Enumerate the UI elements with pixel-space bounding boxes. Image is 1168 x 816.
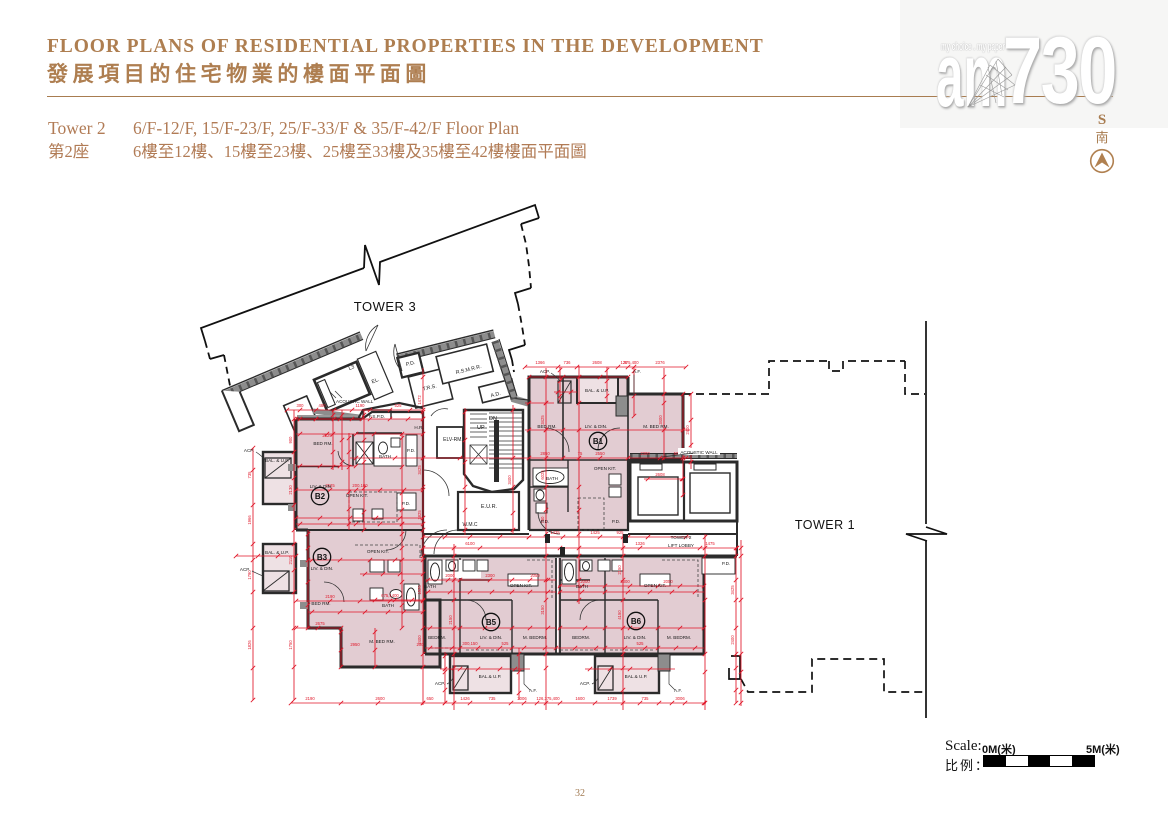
svg-text:TOWER 1: TOWER 1 xyxy=(795,518,855,532)
svg-text:1750: 1750 xyxy=(288,640,293,650)
svg-text:1739: 1739 xyxy=(607,696,617,701)
svg-text:1472: 1472 xyxy=(417,395,422,405)
svg-text:BATH: BATH xyxy=(576,584,588,589)
svg-text:BEDRM.: BEDRM. xyxy=(428,635,446,640)
svg-text:2000: 2000 xyxy=(445,573,455,578)
svg-text:650: 650 xyxy=(427,696,435,701)
svg-text:2110: 2110 xyxy=(288,555,293,565)
svg-text:A.F.: A.F. xyxy=(633,369,641,374)
svg-text:BATH: BATH xyxy=(379,454,391,459)
svg-text:1425: 1425 xyxy=(590,530,600,535)
svg-text:BAL. & U.P.: BAL. & U.P. xyxy=(265,458,289,463)
svg-text:BEDRM.: BEDRM. xyxy=(572,635,590,640)
svg-text:675,1400: 675,1400 xyxy=(381,593,399,598)
svg-text:1600: 1600 xyxy=(575,696,585,701)
svg-text:3006: 3006 xyxy=(517,696,527,701)
svg-text:UP: UP xyxy=(477,425,485,431)
svg-text:OPEN KIT.: OPEN KIT. xyxy=(346,493,368,498)
svg-text:2525: 2525 xyxy=(322,433,332,438)
svg-text:2675: 2675 xyxy=(315,621,325,626)
svg-text:2400: 2400 xyxy=(730,635,735,645)
svg-text:735: 735 xyxy=(642,696,650,701)
svg-text:BATH: BATH xyxy=(424,584,436,589)
svg-text:1190: 1190 xyxy=(355,403,365,408)
svg-text:736: 736 xyxy=(564,360,572,365)
svg-text:LIV. & DIN.: LIV. & DIN. xyxy=(585,424,608,429)
svg-text:1825: 1825 xyxy=(417,585,422,595)
svg-text:B5: B5 xyxy=(486,618,497,627)
svg-text:H.R.: H.R. xyxy=(414,425,423,430)
svg-text:3425: 3425 xyxy=(730,585,735,595)
svg-text:BAL.& U.P.: BAL.& U.P. xyxy=(625,674,648,679)
svg-text:2300: 2300 xyxy=(620,579,630,584)
svg-text:2150: 2150 xyxy=(617,565,622,575)
svg-text:525: 525 xyxy=(502,641,510,646)
svg-text:2130: 2130 xyxy=(288,485,293,495)
svg-text:1966: 1966 xyxy=(247,515,252,525)
svg-text:6025: 6025 xyxy=(540,470,545,480)
svg-text:ACP.: ACP. xyxy=(240,567,250,572)
svg-text:P.D.: P.D. xyxy=(541,519,549,524)
svg-text:M. BEDRM.: M. BEDRM. xyxy=(667,635,691,640)
svg-text:B1: B1 xyxy=(593,437,604,446)
svg-text:2300: 2300 xyxy=(640,451,650,456)
svg-text:126,375,400: 126,375,400 xyxy=(536,696,560,701)
svg-text:B2: B2 xyxy=(315,492,326,501)
svg-text:3006: 3006 xyxy=(675,696,685,701)
svg-text:ACP.: ACP. xyxy=(540,369,550,374)
svg-text:A.F.: A.F. xyxy=(674,688,682,693)
svg-text:P.D.: P.D. xyxy=(722,561,730,566)
svg-text:ACP.: ACP. xyxy=(580,681,590,686)
svg-text:BAL. & U.P.: BAL. & U.P. xyxy=(265,550,289,555)
svg-text:900: 900 xyxy=(288,436,293,444)
svg-text:2190: 2190 xyxy=(325,594,335,599)
svg-text:TOWER 3: TOWER 3 xyxy=(354,299,417,314)
svg-text:1326: 1326 xyxy=(635,541,645,546)
svg-text:LIFT LOBBY: LIFT LOBBY xyxy=(668,543,694,548)
svg-text:LIV. & DIN.: LIV. & DIN. xyxy=(311,566,334,571)
svg-text:ACP.: ACP. xyxy=(435,681,445,686)
svg-text:3425: 3425 xyxy=(417,465,422,475)
svg-text:2150: 2150 xyxy=(448,615,453,625)
svg-text:1426: 1426 xyxy=(460,696,470,701)
svg-text:375,400: 375,400 xyxy=(623,360,639,365)
svg-text:OPEN KIT.: OPEN KIT. xyxy=(594,466,616,471)
svg-text:2600: 2600 xyxy=(375,696,385,701)
svg-text:300,150: 300,150 xyxy=(462,641,478,646)
svg-text:B6: B6 xyxy=(631,617,642,626)
svg-text:2400: 2400 xyxy=(685,425,690,435)
svg-text:ACP.: ACP. xyxy=(244,448,254,453)
svg-text:LIV. & DIN.: LIV. & DIN. xyxy=(624,635,647,640)
svg-text:75: 75 xyxy=(578,451,583,456)
svg-text:2608: 2608 xyxy=(655,472,665,477)
svg-text:6100: 6100 xyxy=(465,541,475,546)
svg-text:BATH: BATH xyxy=(546,476,558,481)
svg-text:M. BED RM.: M. BED RM. xyxy=(369,639,395,644)
svg-text:480: 480 xyxy=(319,403,327,408)
svg-text:P.D.: P.D. xyxy=(407,448,415,453)
svg-text:2400: 2400 xyxy=(417,635,422,645)
svg-text:BAL. & U.P.: BAL. & U.P. xyxy=(585,388,609,393)
svg-text:200,100: 200,100 xyxy=(352,483,368,488)
svg-text:525: 525 xyxy=(395,403,403,408)
svg-text:ELV-RM.: ELV-RM. xyxy=(443,437,463,443)
svg-text:525: 525 xyxy=(637,641,645,646)
svg-text:A.F.: A.F. xyxy=(529,688,537,693)
svg-text:1475: 1475 xyxy=(705,541,715,546)
svg-text:M. BED RM.: M. BED RM. xyxy=(643,424,669,429)
svg-text:P.D.: P.D. xyxy=(612,519,620,524)
svg-text:OPEN KIT.: OPEN KIT. xyxy=(367,549,389,554)
svg-text:OPEN KIT.: OPEN KIT. xyxy=(510,583,532,588)
svg-text:735: 735 xyxy=(489,696,497,701)
svg-text:LIV. & DIN.: LIV. & DIN. xyxy=(480,635,503,640)
svg-text:BATH: BATH xyxy=(382,603,394,608)
svg-text:F.S.P.D.: F.S.P.D. xyxy=(369,414,385,419)
svg-text:1825: 1825 xyxy=(417,510,422,520)
svg-text:3400: 3400 xyxy=(507,475,512,485)
svg-text:M. BEDRM.: M. BEDRM. xyxy=(523,635,547,640)
svg-text:OPEN KIT.: OPEN KIT. xyxy=(644,583,666,588)
svg-text:BED RM.: BED RM. xyxy=(311,601,330,606)
svg-text:3150: 3150 xyxy=(540,605,545,615)
svg-text:E.U.R.: E.U.R. xyxy=(481,504,498,510)
svg-text:2190: 2190 xyxy=(305,696,315,701)
svg-text:2300: 2300 xyxy=(485,573,495,578)
svg-text:TOWER 2: TOWER 2 xyxy=(671,535,692,540)
svg-text:2376: 2376 xyxy=(655,360,665,365)
svg-text:4150: 4150 xyxy=(617,610,622,620)
svg-text:LIV. & DIN.: LIV. & DIN. xyxy=(310,484,333,489)
svg-text:2950: 2950 xyxy=(350,642,360,647)
svg-text:BED RM.: BED RM. xyxy=(537,424,556,429)
svg-text:1425: 1425 xyxy=(550,530,560,535)
svg-text:2550: 2550 xyxy=(595,451,605,456)
svg-text:2050: 2050 xyxy=(530,573,540,578)
svg-text:300: 300 xyxy=(297,403,305,408)
svg-text:1826: 1826 xyxy=(247,640,252,650)
svg-text:P.D.: P.D. xyxy=(402,501,410,506)
svg-text:BAL.& U.P.: BAL.& U.P. xyxy=(479,674,502,679)
svg-text:1366: 1366 xyxy=(535,360,545,365)
svg-text:B3: B3 xyxy=(317,553,328,562)
svg-text:2850: 2850 xyxy=(540,451,550,456)
svg-text:DN: DN xyxy=(489,416,497,422)
svg-text:2608: 2608 xyxy=(592,360,602,365)
svg-text:BED RM.: BED RM. xyxy=(313,441,332,446)
svg-text:735: 735 xyxy=(247,471,252,479)
